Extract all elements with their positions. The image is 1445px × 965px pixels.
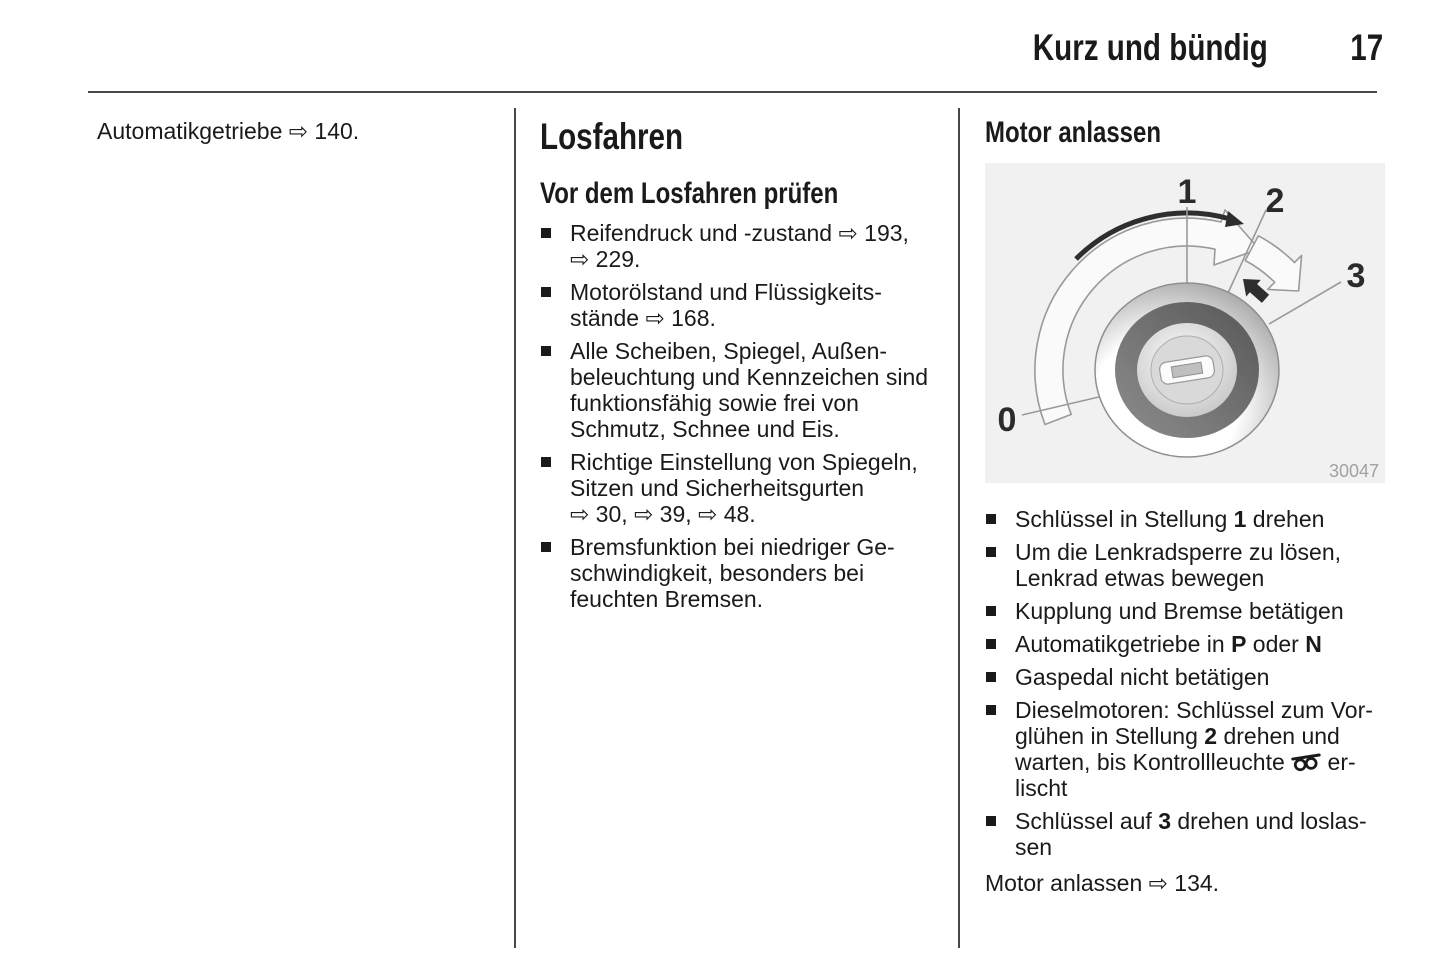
glow-plug-icon	[1291, 751, 1321, 774]
step-item: Schlüssel auf 3 drehen und loslas-sen	[985, 808, 1387, 860]
header-rule	[88, 91, 1377, 93]
column-middle: Losfahren Vor dem Losfahren prüfen Reife…	[540, 118, 945, 619]
cross-reference-text: Automatikgetriebe ⇨ 140.	[97, 118, 487, 144]
step-item: Schlüssel in Stellung 1 drehen	[985, 506, 1387, 532]
step-item: Dieselmotoren: Schlüssel zum Vor-glühen …	[985, 697, 1387, 801]
chapter-title: Kurz und bündig	[1033, 29, 1268, 66]
figure-number: 30047	[1329, 461, 1379, 481]
page-number: 17	[1350, 29, 1383, 66]
ignition-lock	[1095, 283, 1279, 457]
page-header: Kurz und bündig 17	[974, 29, 1383, 66]
checklist-item: Alle Scheiben, Spiegel, Außen-beleuchtun…	[540, 338, 945, 442]
section-title: Losfahren	[540, 118, 945, 155]
checklist-item: Motorölstand und Flüssigkeits-stände ⇨ 1…	[540, 279, 945, 331]
position-label-0: 0	[998, 401, 1017, 439]
column-right: Motor anlassen	[985, 118, 1387, 896]
ignition-switch-figure: 1 2 3 0 30047	[985, 163, 1385, 483]
checklist-item: Bremsfunktion bei niedriger Ge-schwindig…	[540, 534, 945, 612]
column-left: Automatikgetriebe ⇨ 140.	[97, 118, 487, 144]
step-item: Kupplung und Bremse betätigen	[985, 598, 1387, 624]
position-label-2: 2	[1266, 182, 1285, 220]
manual-page: Kurz und bündig 17 Automatikgetriebe ⇨ 1…	[0, 0, 1445, 965]
section-subtitle: Vor dem Losfahren prüfen	[540, 179, 945, 209]
checklist-item: Reifendruck und -zustand ⇨ 193,⇨ 229.	[540, 220, 945, 272]
checklist-item: Richtige Einstellung von Spiegeln,Sitzen…	[540, 449, 945, 527]
step-item: Um die Lenkradsperre zu lösen,Lenkrad et…	[985, 539, 1387, 591]
position-label-1: 1	[1178, 173, 1197, 211]
step-item: Automatikgetriebe in P oder N	[985, 631, 1387, 657]
column-divider-left	[514, 108, 516, 948]
step-item: Gaspedal nicht betätigen	[985, 664, 1387, 690]
engine-start-steps: Schlüssel in Stellung 1 drehenUm die Len…	[985, 506, 1387, 860]
pre-drive-checklist: Reifendruck und -zustand ⇨ 193,⇨ 229.Mot…	[540, 220, 945, 612]
cross-reference-text: Motor anlassen ⇨ 134.	[985, 870, 1387, 896]
column-divider-right	[958, 108, 960, 948]
position-label-3: 3	[1347, 257, 1366, 295]
section-subtitle: Motor anlassen	[985, 118, 1387, 148]
